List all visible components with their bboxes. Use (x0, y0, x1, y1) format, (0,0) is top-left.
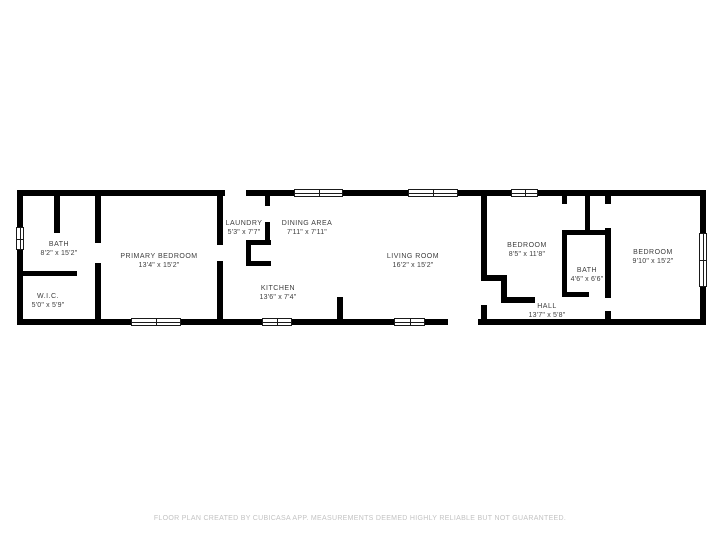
room-name: BEDROOM (633, 248, 674, 257)
room-name: LIVING ROOM (387, 252, 439, 261)
room-label-bedroom-3: BEDROOM 9'10" x 15'2" (633, 248, 674, 266)
wall-segment (95, 263, 101, 319)
wall-segment (17, 319, 448, 325)
window (131, 318, 181, 326)
room-name: BEDROOM (507, 241, 547, 250)
disclaimer-text: FLOOR PLAN CREATED BY CUBICASA APP. MEAS… (0, 515, 720, 522)
room-label-bath-1: BATH 8'2" x 15'2" (41, 240, 78, 258)
room-label-kitchen: KITCHEN 13'6" x 7'4" (260, 284, 297, 302)
wall-segment (23, 271, 77, 276)
room-dimensions: 7'11" x 7'11" (282, 228, 333, 237)
wall-segment (217, 261, 223, 319)
room-dimensions: 13'4" x 15'2" (120, 261, 197, 270)
room-name: BATH (41, 240, 78, 249)
room-name: HALL (529, 302, 566, 311)
wall-segment (481, 305, 487, 319)
room-name: W.I.C. (32, 292, 65, 301)
window (294, 189, 343, 197)
wall-segment (562, 230, 567, 297)
wall-segment (337, 297, 343, 319)
room-name: PRIMARY BEDROOM (120, 252, 197, 261)
window (408, 189, 458, 197)
wall-segment (585, 196, 590, 232)
room-label-living-room: LIVING ROOM 16'2" x 15'2" (387, 252, 439, 270)
wall-segment (562, 230, 611, 235)
room-dimensions: 9'10" x 15'2" (633, 257, 674, 266)
wall-segment (478, 319, 706, 325)
room-dimensions: 13'6" x 7'4" (260, 293, 297, 302)
room-dimensions: 5'0" x 5'9" (32, 301, 65, 310)
room-dimensions: 4'6" x 6'6" (571, 275, 604, 284)
room-label-primary-bedroom: PRIMARY BEDROOM 13'4" x 15'2" (120, 252, 197, 270)
floor-plan-page: BATH 8'2" x 15'2" W.I.C. 5'0" x 5'9" PRI… (0, 0, 720, 540)
room-label-laundry: LAUNDRY 5'3" x 7'7" (226, 219, 263, 237)
wall-segment (17, 190, 225, 196)
room-name: LAUNDRY (226, 219, 263, 228)
room-label-wic: W.I.C. 5'0" x 5'9" (32, 292, 65, 310)
room-label-dining-area: DINING AREA 7'11" x 7'11" (282, 219, 333, 237)
wall-segment (246, 261, 271, 266)
wall-segment (605, 311, 611, 319)
wall-segment (481, 196, 487, 281)
wall-segment (54, 196, 60, 233)
window (511, 189, 538, 197)
window (394, 318, 425, 326)
room-name: DINING AREA (282, 219, 333, 228)
wall-segment (17, 190, 23, 325)
room-dimensions: 8'5" x 11'8" (507, 250, 547, 259)
window (699, 233, 707, 287)
wall-segment (95, 196, 101, 243)
room-label-bath-2: BATH 4'6" x 6'6" (571, 266, 604, 284)
room-dimensions: 8'2" x 15'2" (41, 249, 78, 258)
window (16, 227, 24, 250)
wall-segment (265, 196, 270, 206)
room-name: KITCHEN (260, 284, 297, 293)
room-label-hall: HALL 13'7" x 5'8" (529, 302, 566, 320)
wall-segment (562, 292, 589, 297)
room-dimensions: 16'2" x 15'2" (387, 261, 439, 270)
wall-segment (605, 228, 611, 298)
wall-segment (217, 196, 223, 245)
wall-segment (562, 196, 567, 204)
window (262, 318, 292, 326)
room-name: BATH (571, 266, 604, 275)
room-dimensions: 5'3" x 7'7" (226, 228, 263, 237)
room-dimensions: 13'7" x 5'8" (529, 311, 566, 320)
room-label-bedroom-2: BEDROOM 8'5" x 11'8" (507, 241, 547, 259)
wall-segment (605, 196, 611, 204)
